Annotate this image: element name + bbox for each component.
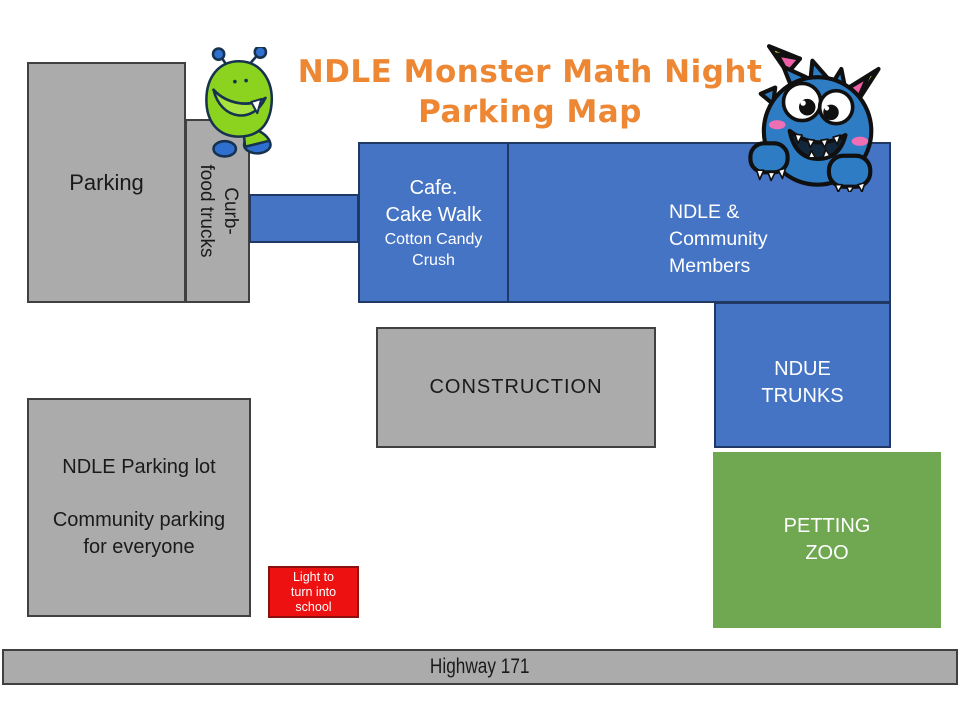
construction-box: CONSTRUCTION — [376, 327, 656, 448]
light-sign-line1: Light to — [293, 570, 334, 585]
cafe-cake-walk-box: Cafe. Cake Walk Cotton Candy Crush — [358, 142, 509, 303]
highway-label: Highway 171 — [430, 655, 530, 679]
community-label-line3: Members — [669, 253, 750, 280]
green-monster-icon — [190, 47, 292, 159]
petting-zoo-line1: PETTING — [784, 513, 871, 540]
road-connector — [249, 194, 359, 243]
parking-box: Parking — [27, 62, 186, 303]
ndle-lot-para2-line1: Community parking — [53, 507, 225, 534]
parking-map-canvas: NDLE Monster Math Night Parking Map Park… — [0, 0, 960, 720]
cafe-label-line2: Cake Walk — [386, 202, 482, 229]
cafe-label-line3: Cotton Candy — [385, 229, 483, 250]
parking-label: Parking — [69, 170, 144, 196]
light-sign-line3: school — [295, 600, 331, 615]
ndle-parking-lot-box: NDLE Parking lot Community parking for e… — [27, 398, 251, 617]
blue-monster-icon — [738, 42, 893, 192]
highway-bar: Highway 171 — [2, 649, 958, 685]
petting-zoo-box: PETTING ZOO — [713, 452, 941, 628]
traffic-light-sign: Light to turn into school — [268, 566, 359, 618]
construction-label: CONSTRUCTION — [429, 376, 602, 399]
petting-zoo-line2: ZOO — [805, 540, 848, 567]
cafe-label-line4: Crush — [412, 250, 455, 271]
ndle-lot-para2-line2: for everyone — [83, 534, 194, 561]
ndue-trunks-box: NDUE TRUNKS — [714, 302, 891, 448]
light-sign-line2: turn into — [291, 585, 336, 600]
community-label-line2: Community — [669, 226, 768, 253]
ndue-trunks-line2: TRUNKS — [761, 383, 843, 410]
cafe-label-line1: Cafe. — [410, 175, 458, 202]
ndue-trunks-line1: NDUE — [774, 356, 831, 383]
ndle-lot-para1: NDLE Parking lot — [62, 454, 215, 481]
community-label-line1: NDLE & — [669, 199, 739, 226]
